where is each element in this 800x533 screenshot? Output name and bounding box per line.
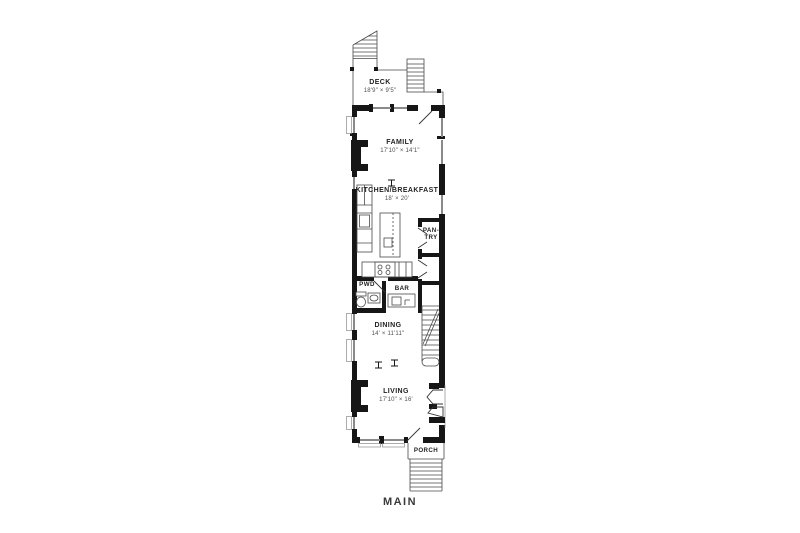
family-room-name: FAMILY — [380, 139, 420, 147]
front-entry-alcove — [427, 383, 445, 428]
kitchen-room-label: KITCHEN/BREAKFAST 18' × 20' — [356, 187, 439, 203]
deck-door-icon — [419, 111, 432, 124]
dining-room-label: DINING 14' × 11'11" — [372, 322, 405, 338]
deck-room-label: DECK 18'9" × 9'5" — [364, 79, 396, 95]
stair-rail-end — [422, 358, 439, 366]
family-room-dims: 17'10" × 14'1" — [380, 148, 420, 155]
dining-room-name: DINING — [372, 322, 405, 330]
living-fireplace-icon — [351, 380, 368, 412]
porch-door-icon — [406, 428, 420, 442]
front-door-icon — [427, 390, 443, 404]
deck-outline-top — [353, 31, 407, 70]
powder-room-label: PWD — [359, 281, 375, 288]
living-room-label: LIVING 17'10" × 16' — [379, 388, 413, 404]
family-fireplace-icon — [351, 140, 368, 171]
toilet-icon — [357, 297, 366, 307]
powder-room-fixtures — [356, 292, 380, 307]
pantry-room-label: PAN- TRY — [423, 227, 439, 241]
dining-room-dims: 14' × 11'11" — [372, 331, 405, 338]
kitchen-room-name: KITCHEN/BREAKFAST — [356, 187, 439, 195]
powder-room-name: PWD — [359, 281, 375, 288]
main-staircase-icon — [422, 306, 440, 366]
kitchen-island — [380, 213, 400, 257]
kitchen-counter-bottom — [362, 262, 412, 277]
closet-door-opening — [418, 259, 427, 279]
bar-label: BAR — [395, 285, 410, 292]
pantry-room-name-line1: PAN- — [423, 227, 439, 234]
porch-name: PORCH — [414, 447, 438, 454]
bar-name: BAR — [395, 285, 410, 292]
kitchen-room-dims: 18' × 20' — [356, 196, 439, 203]
floor-plan-drawing — [0, 0, 800, 533]
family-room-label: FAMILY 17'10" × 14'1" — [380, 139, 420, 155]
deck-stairs-right-icon — [407, 64, 424, 88]
bar-counter — [388, 294, 415, 307]
toilet-tank-icon — [356, 292, 366, 296]
deck-stairs-upper-icon — [353, 36, 377, 59]
porch-label: PORCH — [414, 447, 438, 454]
living-room-name: LIVING — [379, 388, 413, 396]
deck-room-dims: 18'9" × 9'5" — [364, 88, 396, 95]
pantry-room-name-line2: TRY — [423, 234, 439, 241]
floor-name-label: MAIN — [383, 496, 417, 508]
deck-room-name: DECK — [364, 79, 396, 87]
living-room-dims: 17'10" × 16' — [379, 397, 413, 404]
floor-plan-canvas: DECK 18'9" × 9'5" FAMILY 17'10" × 14'1" … — [0, 0, 800, 533]
deck-outline-right — [424, 92, 443, 105]
porch-steps-icon — [410, 463, 442, 487]
